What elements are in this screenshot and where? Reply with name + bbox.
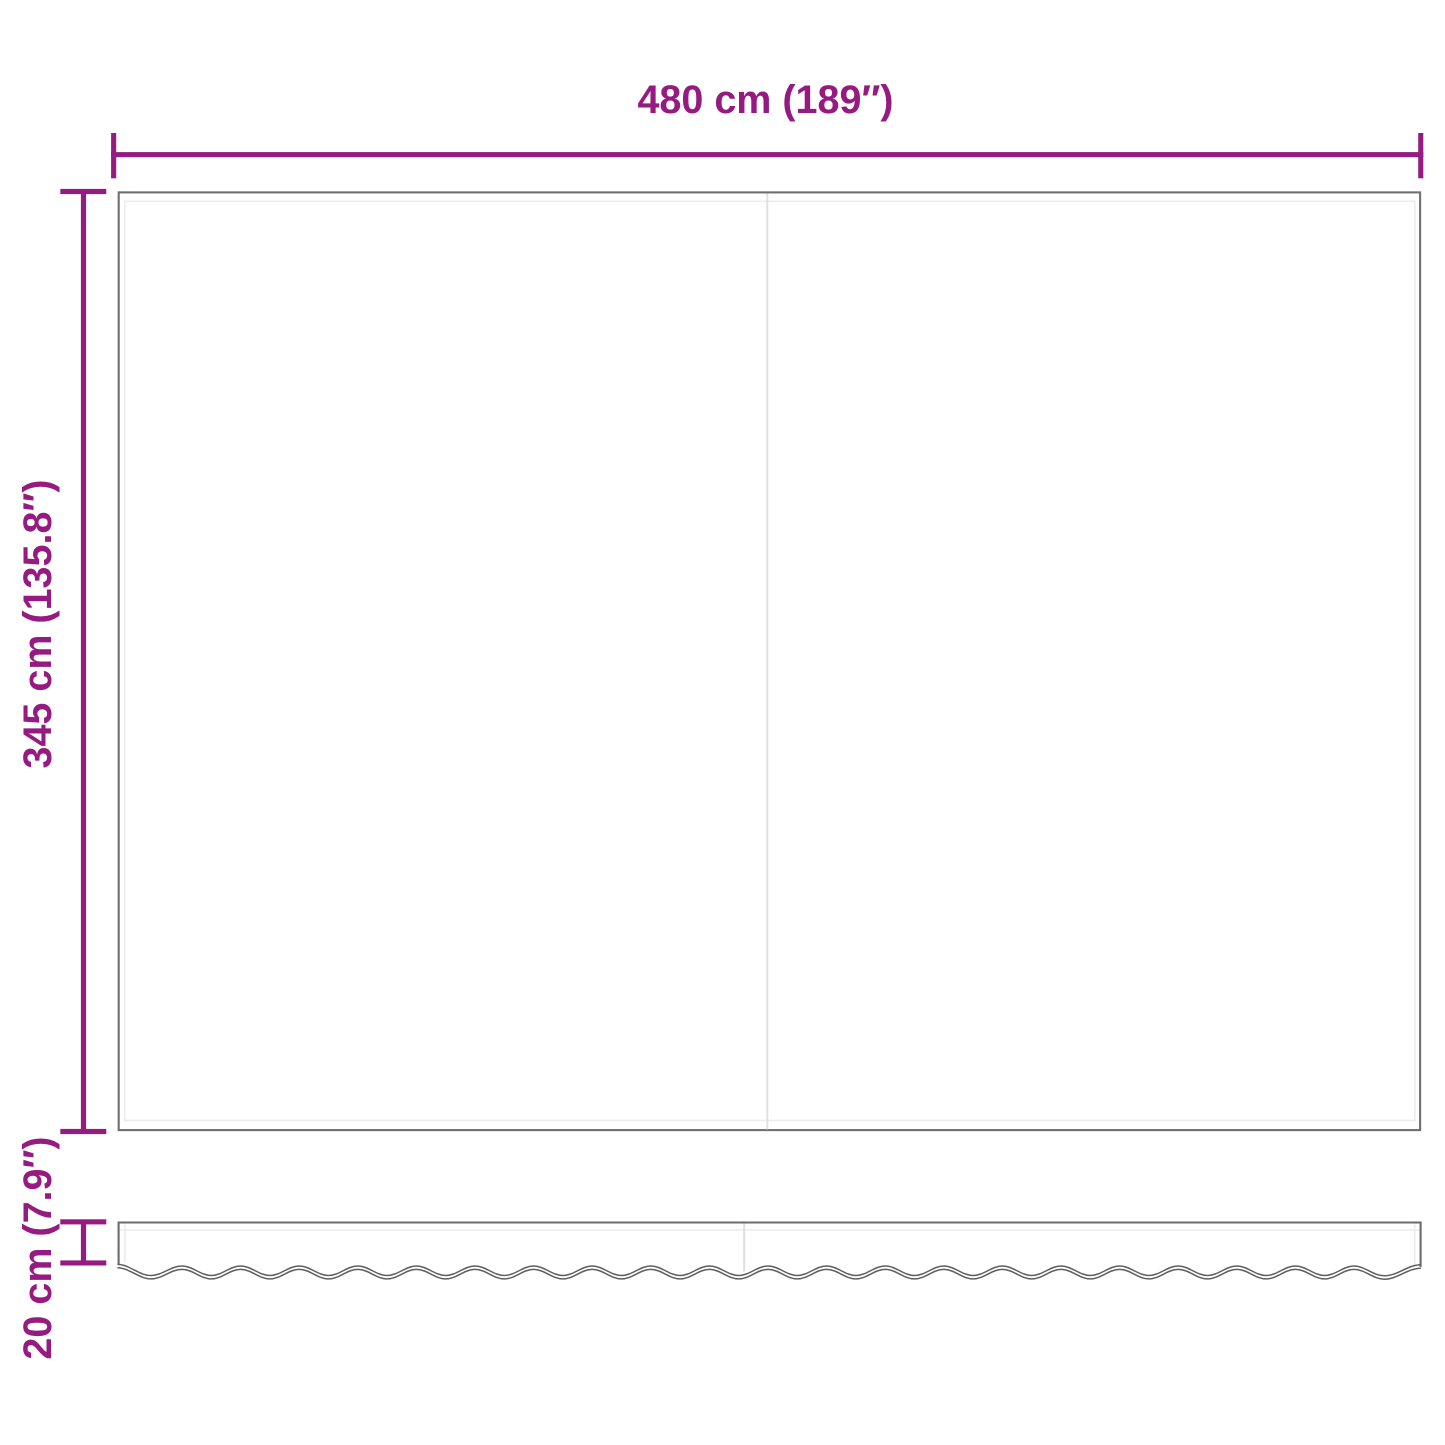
- svg-text:345 cm (135.8″): 345 cm (135.8″): [16, 479, 60, 768]
- svg-text:480 cm (189″): 480 cm (189″): [637, 78, 893, 122]
- svg-text:20 cm (7.9″): 20 cm (7.9″): [16, 1136, 60, 1359]
